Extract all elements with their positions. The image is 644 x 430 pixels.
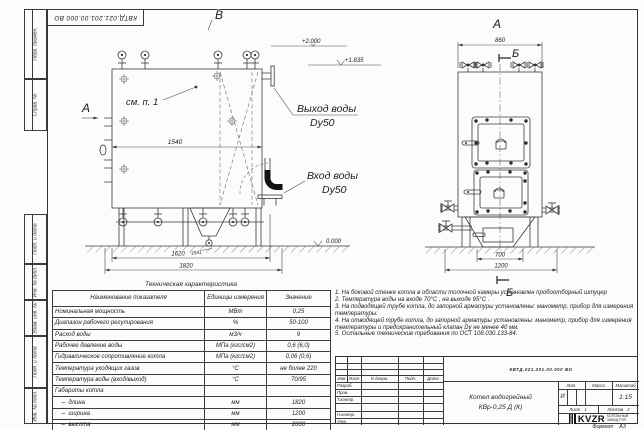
table-row: Температура воды (вход/выход)°С70/95 bbox=[53, 374, 331, 385]
technical-notes: 1. На боковой стенке котла в области топ… bbox=[335, 290, 636, 338]
note-line: 4. На отводящей трубе котла, до запорной… bbox=[335, 318, 636, 332]
cell: 1820 bbox=[267, 397, 331, 408]
cell: МВт bbox=[205, 307, 267, 318]
row-empty bbox=[336, 403, 361, 411]
outlet-label: Выход воды bbox=[297, 103, 356, 115]
row-razrab: Разраб. bbox=[336, 382, 361, 389]
note-line: 3. На подводящей трубе котла, до запорно… bbox=[335, 304, 636, 318]
dim-1540: 1540 bbox=[168, 139, 183, 146]
table-row: Температура уходящих газов°Сне более 220 bbox=[53, 363, 331, 374]
rev-col-izm: Изм bbox=[336, 375, 347, 382]
cell: м3/ч bbox=[205, 329, 267, 340]
table-row: Диапазон рабочего регулирования%50-100 bbox=[53, 318, 331, 329]
cell: °С bbox=[205, 374, 267, 385]
cell: не более 220 bbox=[267, 363, 331, 374]
cell: МПа (кгс/см2) bbox=[205, 340, 267, 351]
rev-col-list: Лист bbox=[347, 375, 361, 382]
sheet-value: 1 bbox=[584, 407, 586, 412]
lit-header: Лит. bbox=[558, 381, 585, 389]
sheets-cell: Листов 2 bbox=[598, 405, 639, 413]
cell: °С bbox=[205, 363, 267, 374]
product-name: Котел водогрейный КВр-0,25 Д (К) bbox=[443, 383, 558, 423]
section-mark-b-top: Б bbox=[512, 48, 519, 60]
cell bbox=[267, 386, 331, 397]
cell: Расход воды bbox=[53, 329, 205, 340]
drawing-sheet: Перв. примен. Справ. № Подп. и дата Инв.… bbox=[0, 0, 644, 430]
scale-value: 1:15 bbox=[612, 389, 639, 405]
view-mark-v: В bbox=[215, 8, 223, 22]
cell: 50-100 bbox=[267, 318, 331, 329]
format-label: Формат bbox=[592, 424, 613, 430]
cell: Рабочее давление воды bbox=[53, 340, 205, 351]
table-row: – высотамм2000 bbox=[53, 419, 331, 430]
note-line: 2. Температура воды на входе 70°С , на в… bbox=[335, 297, 636, 304]
col-header: Единицы измерения bbox=[205, 291, 267, 307]
cell: Диапазон рабочего регулирования bbox=[53, 318, 205, 329]
cell: Гидравлическое сопротивление котла bbox=[53, 352, 205, 363]
logo-text: KVZR bbox=[578, 414, 605, 425]
lit-value: И bbox=[558, 389, 567, 405]
sheets-label: Листов bbox=[607, 407, 623, 412]
format-note: Формат А3 bbox=[580, 424, 638, 430]
cell: 2000 bbox=[267, 419, 331, 430]
rev-col-data: Дата bbox=[423, 375, 443, 382]
product-name-line2: КВр-0,25 Д (К) bbox=[479, 403, 523, 413]
inlet-size: Dy50 bbox=[322, 184, 347, 196]
cell: мм bbox=[205, 397, 267, 408]
elev-plus-1835: +1.835 bbox=[345, 58, 364, 64]
logo-bars-icon bbox=[569, 414, 576, 424]
inlet-label: Вход воды bbox=[307, 170, 358, 182]
cell: мм bbox=[205, 419, 267, 430]
row-tkontr: Т.контр. bbox=[336, 396, 361, 403]
dim-700: 700 bbox=[495, 253, 506, 259]
rev-col-ndoc: N докум. bbox=[361, 375, 398, 382]
cell: 0,06 (0,6) bbox=[267, 352, 331, 363]
rev-col-podp: Подп. bbox=[398, 375, 423, 382]
row-nkontr: Н.контр. bbox=[336, 411, 361, 418]
logo-subtext: КОТЕЛЬНЫЙ ЗАВОД РЭП bbox=[607, 415, 628, 423]
title-block-doc-number: КВТД.021.201.00.000 ВО bbox=[443, 357, 639, 381]
cell: Температура уходящих газов bbox=[53, 363, 205, 374]
table-row: Рабочее давление водыМПа (кгс/см2)0,6 (6… bbox=[53, 340, 331, 351]
outlet-size: Dy50 bbox=[310, 117, 335, 129]
table-row: Габариты котла bbox=[53, 386, 331, 397]
cell: МПа (кгс/см2) bbox=[205, 352, 267, 363]
sheets-value: 2 bbox=[627, 407, 629, 412]
cell: 0,25 bbox=[267, 307, 331, 318]
dim-860: 860 bbox=[495, 38, 506, 44]
table-row: – длинамм1820 bbox=[53, 397, 331, 408]
cell: – длина bbox=[53, 397, 205, 408]
sheet-label: Лист bbox=[569, 407, 580, 412]
cell: – высота bbox=[53, 419, 205, 430]
dim-1620: 1620 bbox=[171, 252, 185, 258]
elev-zero: 0.000 bbox=[326, 239, 342, 245]
cell: 9 bbox=[267, 329, 331, 340]
cell: 0,6 (6,0) bbox=[267, 340, 331, 351]
dim-1200: 1200 bbox=[494, 264, 508, 270]
tech-table-header: Наименование показателя Единицы измерени… bbox=[53, 291, 331, 307]
table-row: – ширинамм1200 bbox=[53, 408, 331, 419]
right-view-linework bbox=[425, 42, 595, 284]
sheet-cell: Лист 1 bbox=[558, 405, 598, 413]
dir-mark-a: А bbox=[81, 101, 90, 115]
view-mark-a: А bbox=[492, 17, 501, 31]
note-line: 1. На боковой стенке котла в области топ… bbox=[335, 290, 636, 297]
elev-plus-2000: +2.000 bbox=[302, 39, 321, 45]
table-row: Гидравлическое сопротивление котлаМПа (к… bbox=[53, 352, 331, 363]
col-header: Наименование показателя bbox=[53, 291, 205, 307]
cell: 70/95 bbox=[267, 374, 331, 385]
table-row: Номинальная мощностьМВт0,25 bbox=[53, 307, 331, 318]
dim-1541: 1541 bbox=[190, 249, 202, 257]
mass-header: Масса bbox=[585, 381, 612, 389]
left-view-linework bbox=[82, 20, 381, 274]
cell: 1200 bbox=[267, 408, 331, 419]
row-prov: Пров. bbox=[336, 389, 361, 396]
product-name-line1: Котел водогрейный bbox=[469, 393, 532, 403]
cell: % bbox=[205, 318, 267, 329]
tech-table: Наименование показателя Единицы измерени… bbox=[52, 290, 331, 430]
tech-table-title: Техническая характеристика bbox=[52, 281, 330, 288]
cell bbox=[205, 386, 267, 397]
title-block: Изм Лист N докум. Подп. Дата Разраб. Про… bbox=[335, 356, 638, 424]
scale-header: Масштаб bbox=[612, 381, 639, 389]
cell: Габариты котла bbox=[53, 386, 205, 397]
row-utv: Утв. bbox=[336, 418, 361, 425]
format-value: А3 bbox=[619, 424, 625, 430]
dim-1820: 1820 bbox=[179, 264, 193, 270]
table-row: Расход водым3/ч9 bbox=[53, 329, 331, 340]
cell: Номинальная мощность bbox=[53, 307, 205, 318]
cell: мм bbox=[205, 408, 267, 419]
note-line: 5. Остальные технические требования по О… bbox=[335, 331, 636, 338]
see-note-label: см. п. 1 bbox=[126, 97, 158, 108]
cell: – ширина bbox=[53, 408, 205, 419]
cell: Температура воды (вход/выход) bbox=[53, 374, 205, 385]
col-header: Значение bbox=[267, 291, 331, 307]
